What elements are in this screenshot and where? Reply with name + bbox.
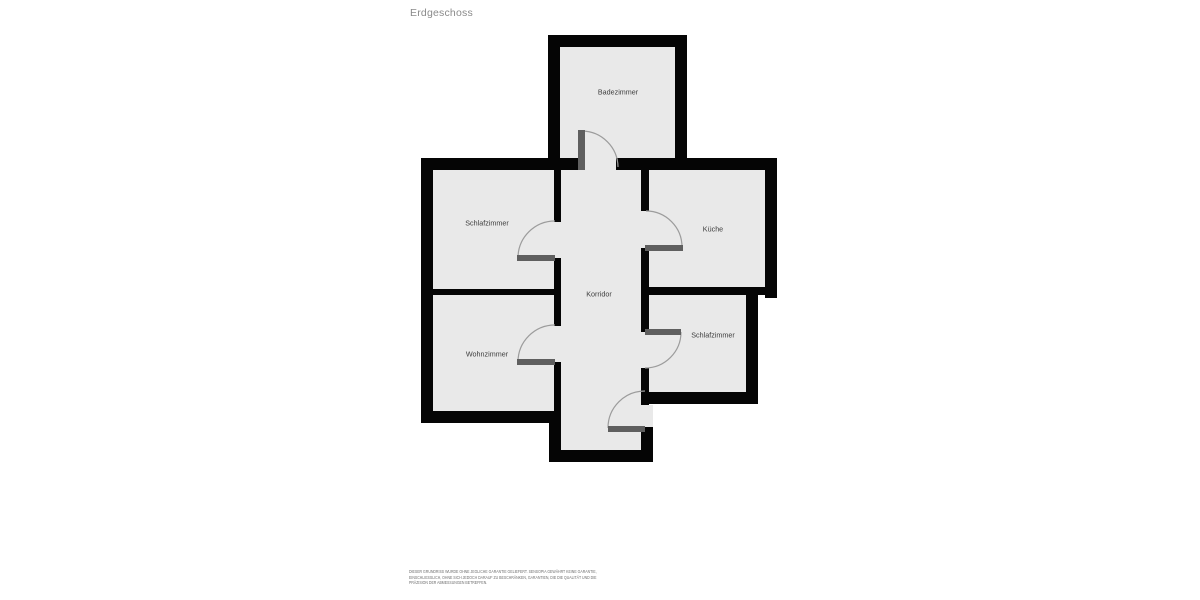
wall — [421, 158, 561, 170]
wall — [645, 392, 758, 404]
disclaimer-line-3: PRÄZISION DER ABMESSUNGEN BETREFFEN. — [409, 580, 597, 586]
wall — [641, 248, 649, 332]
door-leaf — [645, 245, 683, 251]
room-badezimmer-floor — [560, 47, 675, 158]
wall — [549, 450, 653, 462]
wall — [421, 411, 561, 423]
room-korridor-floor — [561, 170, 641, 450]
room-label-wohnzimmer: Wohnzimmer — [466, 350, 508, 359]
room-label-kueche: Küche — [703, 225, 723, 234]
door-opening — [641, 332, 649, 368]
wall — [641, 170, 649, 211]
wall — [421, 158, 433, 423]
wall — [641, 158, 777, 170]
door-leaf — [608, 426, 645, 432]
room-floors-layer — [433, 47, 765, 450]
door-leaf — [645, 329, 681, 335]
disclaimer-text: DIESER GRUNDRISS WURDE OHNE JEGLICHE GAR… — [409, 569, 597, 586]
door-leaf — [517, 255, 555, 261]
door-leaf — [517, 359, 555, 365]
disclaimer-line-1: DIESER GRUNDRISS WURDE OHNE JEGLICHE GAR… — [409, 569, 597, 575]
wall — [649, 287, 777, 295]
room-schlafzimmer-2-floor — [649, 295, 746, 392]
door-leaf — [578, 130, 585, 170]
room-label-korridor: Korridor — [586, 290, 612, 299]
door-opening — [641, 405, 653, 427]
wall — [548, 35, 687, 47]
room-schlafzimmer-1-floor — [433, 170, 554, 289]
wall — [746, 295, 758, 404]
room-label-schlafzimmer-1: Schlafzimmer — [465, 219, 509, 228]
room-label-schlafzimmer-2: Schlafzimmer — [691, 331, 735, 340]
wall — [433, 289, 554, 295]
floor-plan-page: Erdgeschoss — [0, 0, 1200, 600]
wall — [765, 158, 777, 298]
room-label-badezimmer: Badezimmer — [598, 88, 638, 97]
wall — [548, 35, 560, 170]
door-opening — [554, 326, 561, 362]
wall — [554, 170, 561, 222]
door-opening — [641, 211, 649, 248]
wall — [641, 427, 653, 462]
door-opening — [554, 222, 561, 258]
wall — [675, 35, 687, 170]
